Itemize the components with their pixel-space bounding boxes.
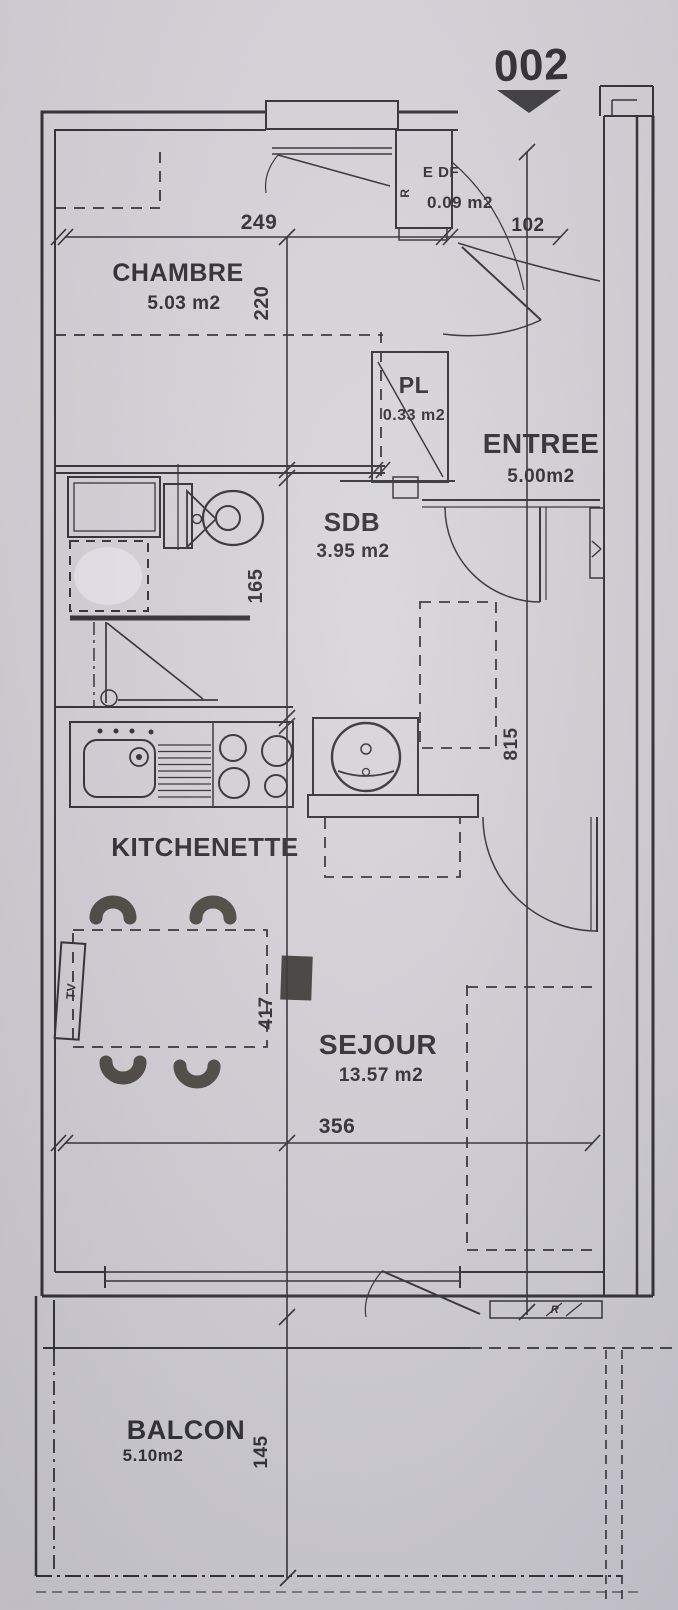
unit-number: 002 <box>493 40 570 92</box>
room-label-entree: ENTREE <box>483 428 600 459</box>
hob-burners <box>219 735 292 798</box>
chambre-window <box>266 101 399 193</box>
meter-mark: R <box>398 188 412 197</box>
balcony-door-swing <box>365 1271 382 1317</box>
knob-dots <box>98 729 154 735</box>
sejour-door-swing <box>483 817 597 931</box>
room-area-chambre: 5.03 m2 <box>147 293 220 314</box>
storage-outline <box>420 602 496 748</box>
floor-plan-scan: 002 <box>0 0 678 1610</box>
sdb-door-swing <box>445 507 540 602</box>
room-area-edf: 0.09 m2 <box>427 193 493 212</box>
dim-sdb-depth: 165 <box>245 569 267 604</box>
dimension-lines <box>51 144 601 1586</box>
room-label-edf: E DF <box>423 164 459 181</box>
chair <box>106 1062 140 1078</box>
tv-unit: TV <box>55 942 86 1039</box>
room-label-kitchenette: KITCHENETTE <box>111 832 299 862</box>
chair <box>180 1066 214 1082</box>
dim-apartment-depth: 815 <box>501 727 522 760</box>
doors <box>365 162 602 1318</box>
entry-door-leaf <box>462 247 541 320</box>
k-mark <box>592 541 601 557</box>
whiteout-patch <box>74 547 142 605</box>
room-label-sdb: SDB <box>324 507 380 537</box>
dim-entry-width: 102 <box>511 215 544 236</box>
dining-table <box>73 930 267 1047</box>
chair <box>196 902 230 918</box>
washer-outline <box>325 818 460 877</box>
dim-chambre-depth: 220 <box>251 286 273 321</box>
room-label-balcon: BALCON <box>127 1415 246 1445</box>
vanity-counter <box>68 477 160 537</box>
shower-fixture <box>94 622 218 706</box>
room-area-sdb: 3.95 m2 <box>316 541 389 562</box>
room-area-balcon: 5.10m2 <box>123 1446 184 1465</box>
radiator-mark: R <box>551 1304 559 1316</box>
kitchen-fixtures <box>70 718 418 807</box>
sink-fixture <box>84 740 155 797</box>
room-label-sejour: SEJOUR <box>319 1029 437 1060</box>
chair <box>96 902 130 918</box>
unit-pointer-icon <box>497 90 561 113</box>
edf-closet <box>396 130 452 240</box>
floor-plan-svg: 002 <box>0 0 678 1610</box>
room-label-chambre: CHAMBRE <box>112 259 243 287</box>
room-area-pl: 0.33 m2 <box>383 407 445 424</box>
room-area-entree: 5.00m2 <box>507 466 574 487</box>
drainboard <box>158 745 211 797</box>
dim-balcon-depth: 145 <box>251 1435 272 1468</box>
bed-outline <box>467 985 600 1250</box>
balcony-door-leaf <box>382 1271 480 1314</box>
dim-chambre-width: 249 <box>241 211 278 234</box>
room-label-pl: PL <box>399 372 429 398</box>
tv-label: TV <box>63 982 78 999</box>
sejour-furniture: TV <box>55 902 313 1082</box>
dim-sejour-width: 356 <box>319 1115 356 1138</box>
dashed-outlines <box>55 152 600 1250</box>
dim-sejour-depth: 417 <box>256 996 277 1029</box>
sdb-fixtures <box>68 464 263 706</box>
column <box>280 955 313 1000</box>
washbasin-fixture <box>313 718 418 795</box>
toilet-fixture <box>164 464 263 550</box>
room-area-sejour: 13.57 m2 <box>339 1065 423 1086</box>
wardrobe-outline <box>55 152 160 208</box>
